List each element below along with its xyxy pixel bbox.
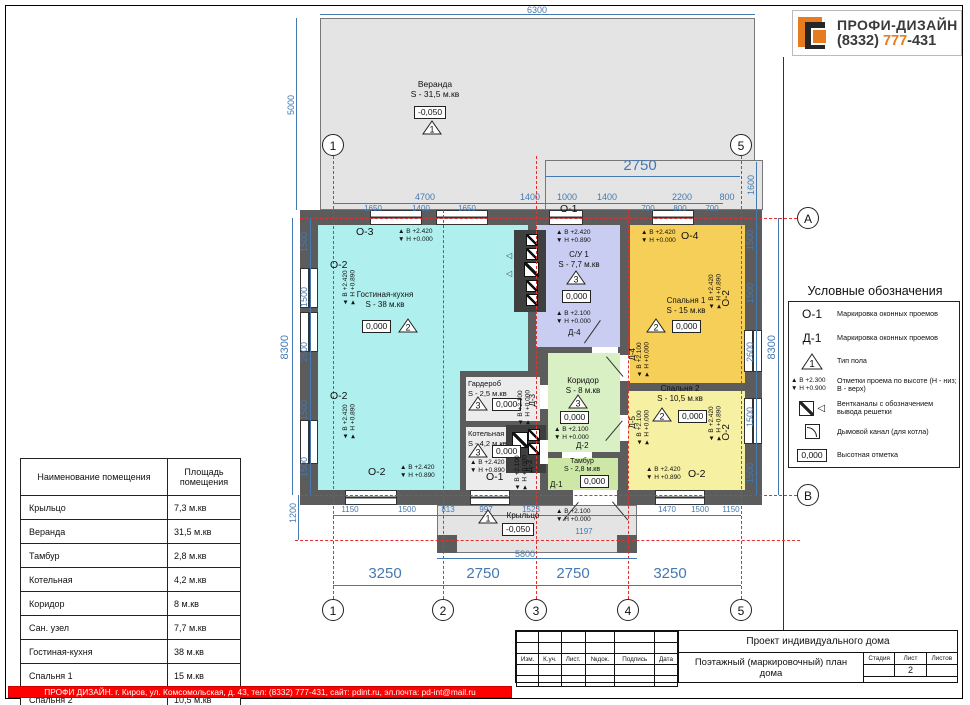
dim-label: 4700	[405, 192, 445, 202]
dim-label: 5000	[287, 95, 296, 115]
legend-item-height-marks: ▲ В +2.300▼ Н +0.900Отметки проема по вы…	[791, 376, 957, 394]
room-label-tambur: ТамбурS - 2,8 м.кв	[546, 458, 618, 474]
door-tag: Д-4	[568, 328, 581, 337]
floor-type-icon: 1	[801, 353, 823, 370]
height-mark-sample: ▲ В +2.300▼ Н +0.900	[791, 377, 833, 392]
height-mark: ▲ В +2.100▼ Н +0.000	[554, 426, 589, 441]
svg-text:3: 3	[475, 401, 480, 411]
dim-label: 1600	[747, 175, 756, 195]
dim-label: 1500	[300, 457, 309, 477]
window-tag: О-2	[722, 290, 732, 307]
floor-type-icon: 3	[468, 443, 488, 458]
door-opening-wardrobe	[540, 385, 548, 409]
height-mark: ▲ В +2.420▼ Н +0.890	[708, 274, 723, 309]
dim-label: 2750	[545, 566, 601, 582]
porch-post	[617, 535, 637, 553]
dim-label: 1500	[746, 407, 755, 427]
floor-type-icon: 2	[646, 318, 666, 333]
axis-circle-2: 2	[432, 599, 454, 621]
table-header-row: Наименование помещения Площадь помещения	[21, 459, 241, 496]
axis-circle-5: 5	[730, 134, 752, 156]
room-label-bed2: Спальня 2S - 10,5 м.кв	[630, 384, 730, 403]
height-mark: ▲ В +2.420▼ Н +0.890	[470, 459, 505, 474]
floor-type-icon: 2	[652, 407, 672, 422]
floor-type-icon: 1	[478, 509, 498, 524]
window-tag: О-2	[688, 469, 706, 480]
dim-label: 1500	[392, 505, 422, 515]
table-row: Тамбур2,8 м.кв	[21, 544, 241, 568]
axis-line-5	[741, 156, 742, 599]
height-mark: ▲ В +2.100▼ Н +0.000	[636, 342, 651, 377]
height-mark: ▲ В +2.420▼ Н +0.000	[641, 229, 676, 244]
elevation-mark: -0,050	[502, 523, 534, 536]
table-row: Коридор8 м.кв	[21, 592, 241, 616]
floor-type-icon: 1	[422, 120, 442, 135]
axis-circle-4: 4	[617, 599, 639, 621]
table-row: Спальня 115 м.кв	[21, 664, 241, 688]
drawing-sheet: ПРОФИ-ДИЗАЙН (8332) 777-431 ◁ ◁ ◁	[0, 0, 970, 705]
legend-item-door-tag: Д-1Маркировка оконных проемов	[791, 329, 957, 347]
sheet-value-row: 2	[864, 665, 957, 677]
dim-line	[545, 176, 740, 177]
title-block: Изм. К.уч. Лист. №док. Подпись Дата Прое…	[515, 630, 958, 683]
dim-label: 3250	[640, 566, 700, 582]
table-row: Веранда31,5 м.кв	[21, 520, 241, 544]
elevation-mark: 0,000	[678, 410, 707, 423]
dim-line	[310, 218, 311, 495]
elevation-mark: 0,000	[580, 475, 609, 488]
dim-line	[756, 218, 757, 495]
revision-header-row: Изм. К.уч. Лист. №док. Подпись Дата	[517, 654, 678, 665]
column-header: Площадь помещения	[168, 459, 241, 496]
axis-line-3	[536, 156, 537, 599]
grille-triangle-icon: ◁	[817, 403, 825, 414]
window-tag-sample: О-1	[791, 307, 833, 321]
project-title: Проект индивидуального дома	[679, 631, 957, 653]
dim-label: 3250	[355, 566, 415, 582]
dim-line	[333, 203, 723, 204]
room-label-corridor: КоридорS - 8 м.кв	[548, 376, 618, 395]
axis-line-1	[333, 156, 334, 599]
legend-box: О-1Маркировка оконных проемов Д-1Маркиро…	[788, 301, 960, 468]
height-mark: ▲ В +2.420▼ Н +0.890	[342, 270, 357, 305]
axis-circle-1: 1	[322, 599, 344, 621]
dim-label: 2750	[455, 566, 511, 582]
legend-item-floor-type: 1Тип пола	[791, 352, 957, 370]
profi-design-logo-icon	[797, 15, 831, 51]
dim-label: 1650	[358, 204, 388, 214]
drawing-title: Поэтажный (маркировочный) план дома	[679, 653, 863, 682]
svg-text:1: 1	[429, 125, 434, 135]
floor-type-icon: 3	[568, 394, 588, 409]
door-opening-su	[592, 347, 618, 353]
dim-line	[333, 585, 741, 586]
height-mark: ▲ В +2.420▼ Н +0.890	[342, 404, 357, 439]
axis-line-A	[300, 218, 797, 219]
axis-circle-5: 5	[730, 599, 752, 621]
door-opening-bed2	[620, 415, 628, 441]
chimney-duct-icon	[805, 424, 820, 439]
dim-label: 1150	[718, 505, 744, 515]
svg-text:2: 2	[659, 412, 664, 422]
room-label-su1: С/У 1S - 7,7 м.кв	[546, 250, 612, 269]
table-row: Сан. узел7,7 м.кв	[21, 616, 241, 640]
window-tag: О-2	[722, 424, 732, 441]
grille-triangle-icon: ◁	[506, 270, 512, 278]
dim-label: 1400	[515, 192, 545, 202]
door-tag: Д-1	[550, 480, 563, 489]
column-header: Наименование помещения	[21, 459, 168, 496]
height-mark: ▲ В +2.100▼ Н +0.000	[517, 390, 532, 425]
room-area-table: Наименование помещения Площадь помещения…	[20, 458, 241, 705]
elevation-mark-sample: 0,000	[797, 449, 826, 462]
dim-label: 1500	[300, 287, 309, 307]
height-mark: ▲ В +2.420▼ Н +0.000	[398, 228, 433, 243]
dim-label: 2200	[664, 192, 700, 202]
svg-text:1: 1	[485, 514, 490, 524]
elevation-mark: 0,000	[362, 320, 391, 333]
table-row: Гостиная-кухня38 м.кв	[21, 640, 241, 664]
dim-label: 1470	[652, 505, 682, 515]
footer-banner: ПРОФИ ДИЗАЙН. г. Киров, ул. Комсомольска…	[8, 686, 512, 698]
dim-label: 800	[714, 192, 740, 202]
window-tag: О-2	[330, 391, 348, 402]
brand-name: ПРОФИ-ДИЗАЙН	[837, 17, 958, 33]
legend-item-vent: ◁Вентканалы с обозначением вывода решетк…	[791, 399, 957, 417]
dim-label: 1400	[406, 204, 436, 214]
dim-label: 1400	[592, 192, 622, 202]
door-tag-sample: Д-1	[791, 331, 833, 345]
svg-text:3: 3	[475, 448, 480, 458]
dim-label: 1500	[300, 400, 309, 420]
dim-line	[778, 218, 779, 495]
window-tag: О-1	[560, 204, 578, 215]
table-row: Крыльцо7,3 м.кв	[21, 496, 241, 520]
dim-label: 8300	[281, 335, 290, 359]
axis-circle-1: 1	[322, 134, 344, 156]
entrance-door-opening	[573, 490, 617, 505]
height-mark: ▲ В +2.100▼ Н +0.000	[636, 410, 651, 445]
height-mark: ▲ В +2.100▼ Н +0.000	[514, 455, 529, 490]
dim-label: 2600	[746, 342, 755, 362]
window-bottom-bed2	[655, 490, 705, 505]
dim-label: 8300	[768, 335, 777, 359]
window-tag: О-4	[681, 231, 699, 242]
dim-label: 700	[700, 204, 724, 214]
floor-type-icon: 3	[468, 396, 488, 411]
dim-label: 1500	[746, 283, 755, 303]
margin-divider-line	[783, 57, 784, 630]
dim-label: 1500	[300, 232, 309, 252]
window-tag: О-3	[356, 227, 374, 238]
dim-label: 813	[436, 505, 460, 515]
floor-type-icon: 3	[566, 270, 586, 285]
dim-line	[298, 495, 299, 540]
elevation-mark: -0,050	[414, 106, 446, 119]
legend-title: Условные обозначения	[792, 284, 958, 298]
axis-circle-3: 3	[525, 599, 547, 621]
height-mark: ▲ В +2.100▼ Н +0.000	[556, 310, 591, 325]
axis-line-B	[300, 495, 797, 496]
svg-text:3: 3	[575, 399, 580, 409]
height-mark: ▲ В +2.420▼ Н +0.890	[556, 229, 591, 244]
dim-label: 1650	[452, 204, 482, 214]
elevation-mark: 0,000	[560, 411, 589, 424]
window-bottom-boiler	[470, 490, 510, 505]
axis-circle-B: В	[797, 484, 819, 506]
brand-phone: (8332) 777-431	[837, 33, 958, 49]
title-block-revision-grid: Изм. К.уч. Лист. №док. Подпись Дата	[516, 631, 678, 687]
porch-post	[437, 535, 457, 553]
dim-label: 1197	[566, 527, 602, 537]
dim-line	[296, 18, 297, 210]
dim-line	[292, 218, 293, 495]
grille-triangle-icon: ◁	[506, 252, 512, 260]
svg-text:1: 1	[809, 359, 815, 370]
sheet-header-row: Стадия Лист Листов	[864, 653, 957, 665]
height-mark: ▲ В +2.420▼ Н +0.890	[400, 464, 435, 479]
legend-item-elevation: 0,000Высотная отметка	[791, 446, 957, 464]
porch-bottom-redline	[295, 540, 800, 541]
dim-label: 1500	[746, 463, 755, 483]
dim-label: 1500	[746, 230, 755, 250]
dim-label: 2600	[300, 342, 309, 362]
dim-label: 5800	[495, 549, 555, 559]
door-tag: Д-2	[576, 441, 589, 450]
dim-label: 1000	[552, 192, 582, 202]
svg-text:2: 2	[405, 323, 410, 333]
height-mark: ▲ В +2.420▼ Н +0.890	[646, 466, 681, 481]
dim-label: 700	[636, 204, 660, 214]
table-row: Котельная4,2 м.кв	[21, 568, 241, 592]
window-bottom-living	[345, 490, 397, 505]
vent-duct-icon	[799, 401, 814, 416]
floor-type-icon: 2	[398, 318, 418, 333]
height-mark: ▲ В +2.100▼ Н +0.000	[556, 508, 591, 523]
company-logo: ПРОФИ-ДИЗАЙН (8332) 777-431	[792, 10, 962, 56]
height-mark: ▲ В +2.420▼ Н +0.890	[708, 406, 723, 441]
room-label-porch: Крыльцо	[498, 511, 548, 521]
axis-circle-A: А	[797, 207, 819, 229]
dim-label: 1500	[686, 505, 714, 515]
elevation-mark: 0,000	[562, 290, 591, 303]
dim-label: 6300	[505, 5, 569, 15]
legend-item-window-tag: О-1Маркировка оконных проемов	[791, 305, 957, 323]
room-label-veranda: ВерандаS - 31,5 м.кв	[390, 80, 480, 99]
legend-item-chimney: Дымовой канал (для котла)	[791, 423, 957, 441]
dim-label: 1150	[336, 505, 364, 515]
svg-text:2: 2	[653, 323, 658, 333]
dim-label: 1200	[289, 503, 298, 523]
elevation-mark: 0,000	[672, 320, 701, 333]
dim-label: 800	[668, 204, 692, 214]
dim-label: 2750	[612, 158, 668, 174]
dim-line	[756, 162, 757, 218]
svg-text:3: 3	[573, 275, 578, 285]
sheet-number: 2	[895, 665, 926, 676]
window-tag: О-2	[368, 467, 386, 478]
